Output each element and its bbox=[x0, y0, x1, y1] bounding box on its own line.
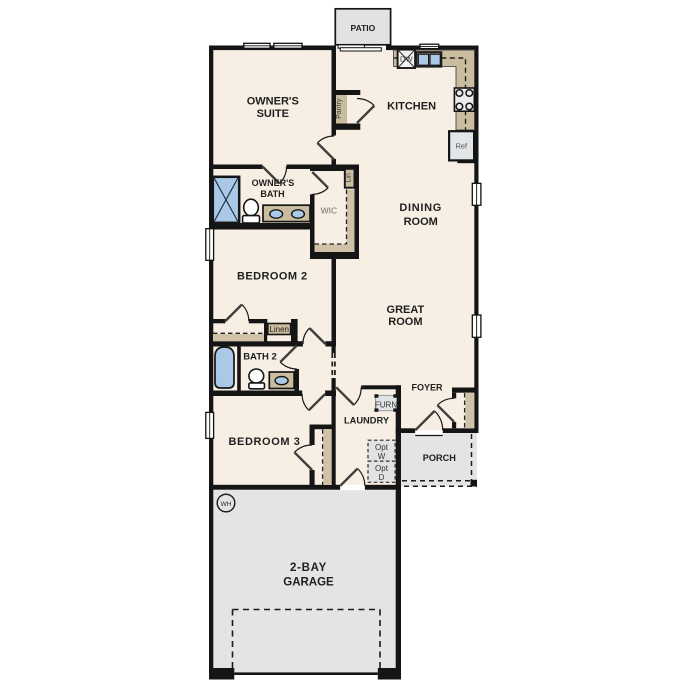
svg-text:WH: WH bbox=[221, 501, 232, 508]
svg-text:GREAT: GREAT bbox=[387, 304, 425, 316]
svg-text:BATH 2: BATH 2 bbox=[243, 352, 277, 363]
svg-text:FURN: FURN bbox=[375, 400, 397, 409]
svg-text:OWNER'S: OWNER'S bbox=[247, 96, 299, 108]
svg-text:Pantry: Pantry bbox=[336, 98, 343, 119]
svg-text:SUITE: SUITE bbox=[257, 108, 289, 120]
svg-text:D: D bbox=[379, 473, 385, 482]
svg-text:Opt: Opt bbox=[375, 464, 389, 473]
svg-text:WIC: WIC bbox=[321, 205, 338, 215]
svg-text:DINING: DINING bbox=[399, 202, 442, 214]
svg-text:Ref: Ref bbox=[455, 142, 468, 151]
svg-text:BEDROOM 2: BEDROOM 2 bbox=[237, 271, 308, 283]
svg-text:PORCH: PORCH bbox=[423, 453, 457, 463]
svg-text:Opt: Opt bbox=[375, 443, 389, 452]
svg-text:2-BAY: 2-BAY bbox=[290, 562, 327, 574]
svg-text:W: W bbox=[378, 452, 386, 461]
svg-text:PATIO: PATIO bbox=[351, 23, 376, 33]
svg-text:BATH: BATH bbox=[260, 189, 284, 199]
svg-text:DW: DW bbox=[400, 55, 413, 64]
svg-text:GARAGE: GARAGE bbox=[283, 577, 334, 589]
svg-text:BEDROOM 3: BEDROOM 3 bbox=[228, 436, 300, 448]
svg-text:KITCHEN: KITCHEN bbox=[387, 101, 436, 113]
svg-text:OWNER'S: OWNER'S bbox=[252, 178, 295, 188]
svg-text:Linen: Linen bbox=[269, 325, 289, 334]
svg-text:LAUNDRY: LAUNDRY bbox=[344, 416, 390, 426]
svg-text:ROOM: ROOM bbox=[388, 316, 422, 328]
svg-text:ROOM: ROOM bbox=[404, 216, 438, 228]
svg-text:Lin: Lin bbox=[345, 173, 352, 182]
svg-text:FOYER: FOYER bbox=[411, 383, 443, 393]
